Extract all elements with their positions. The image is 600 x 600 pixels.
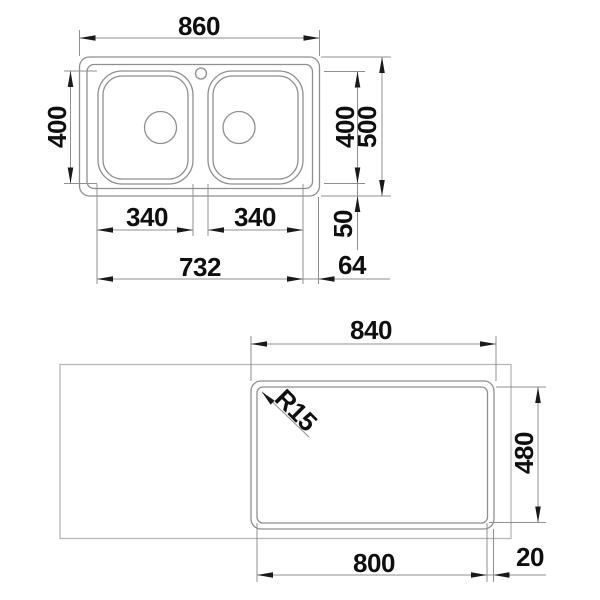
arrow-400R-top — [355, 72, 361, 88]
arrow-20-right — [494, 572, 510, 578]
bottom-view-arrowheads — [251, 341, 541, 578]
arrow-860-left — [80, 35, 96, 41]
arrow-800-right — [471, 572, 487, 578]
dim-label-cutout-depth: 480 — [511, 421, 537, 485]
dim-label-bowls-outer-span: 732 — [168, 254, 232, 280]
arrow-340L-left — [97, 227, 113, 233]
sink-inner-rim — [87, 65, 313, 189]
left-bowl-outer — [98, 71, 193, 184]
dim-label-edge-clearance: 20 — [498, 544, 562, 570]
arrow-732-left — [97, 276, 113, 282]
tap-hole — [196, 68, 207, 79]
arrow-480-top — [535, 387, 541, 403]
dim-label-sink-base-width: 840 — [339, 317, 403, 343]
dim-label-bowl-width-left: 340 — [115, 204, 179, 230]
left-bowl-inner — [103, 76, 188, 179]
drawing-linework — [0, 0, 600, 600]
arrow-800-left — [257, 572, 273, 578]
right-drain-hole — [223, 112, 255, 144]
arrow-840-right — [480, 341, 496, 347]
arrow-400R-bottom — [355, 168, 361, 184]
arrow-340R-left — [208, 227, 224, 233]
arrow-400L-top — [68, 71, 74, 87]
arrow-840-left — [251, 341, 267, 347]
arrow-340L-right — [177, 227, 193, 233]
dim-label-overall-width: 860 — [167, 13, 231, 39]
arrow-500-top — [379, 57, 385, 73]
dim-label-bowl-width-right: 340 — [223, 204, 287, 230]
dim-label-cutout-width: 800 — [342, 550, 406, 576]
arrow-340R-right — [287, 227, 303, 233]
top-view-sink-outline — [80, 57, 320, 196]
dim-label-bottom-edge-offset: 50 — [330, 192, 356, 256]
dim-label-overall-depth: 500 — [354, 95, 380, 159]
sink-outer-edge — [80, 57, 320, 196]
dim-label-right-edge-offset: 64 — [320, 252, 384, 278]
arrow-860-right — [304, 35, 320, 41]
arrow-480-bottom — [535, 507, 541, 523]
dim-label-bowl-depth-left: 400 — [44, 95, 70, 159]
left-drain-hole — [145, 112, 177, 144]
arrow-500-bottom — [379, 180, 385, 196]
arrow-732-right — [287, 276, 303, 282]
sink-technical-drawing: 860 400 400 500 50 340 340 732 64 840 R1… — [0, 0, 600, 600]
arrow-400L-bottom — [68, 168, 74, 184]
